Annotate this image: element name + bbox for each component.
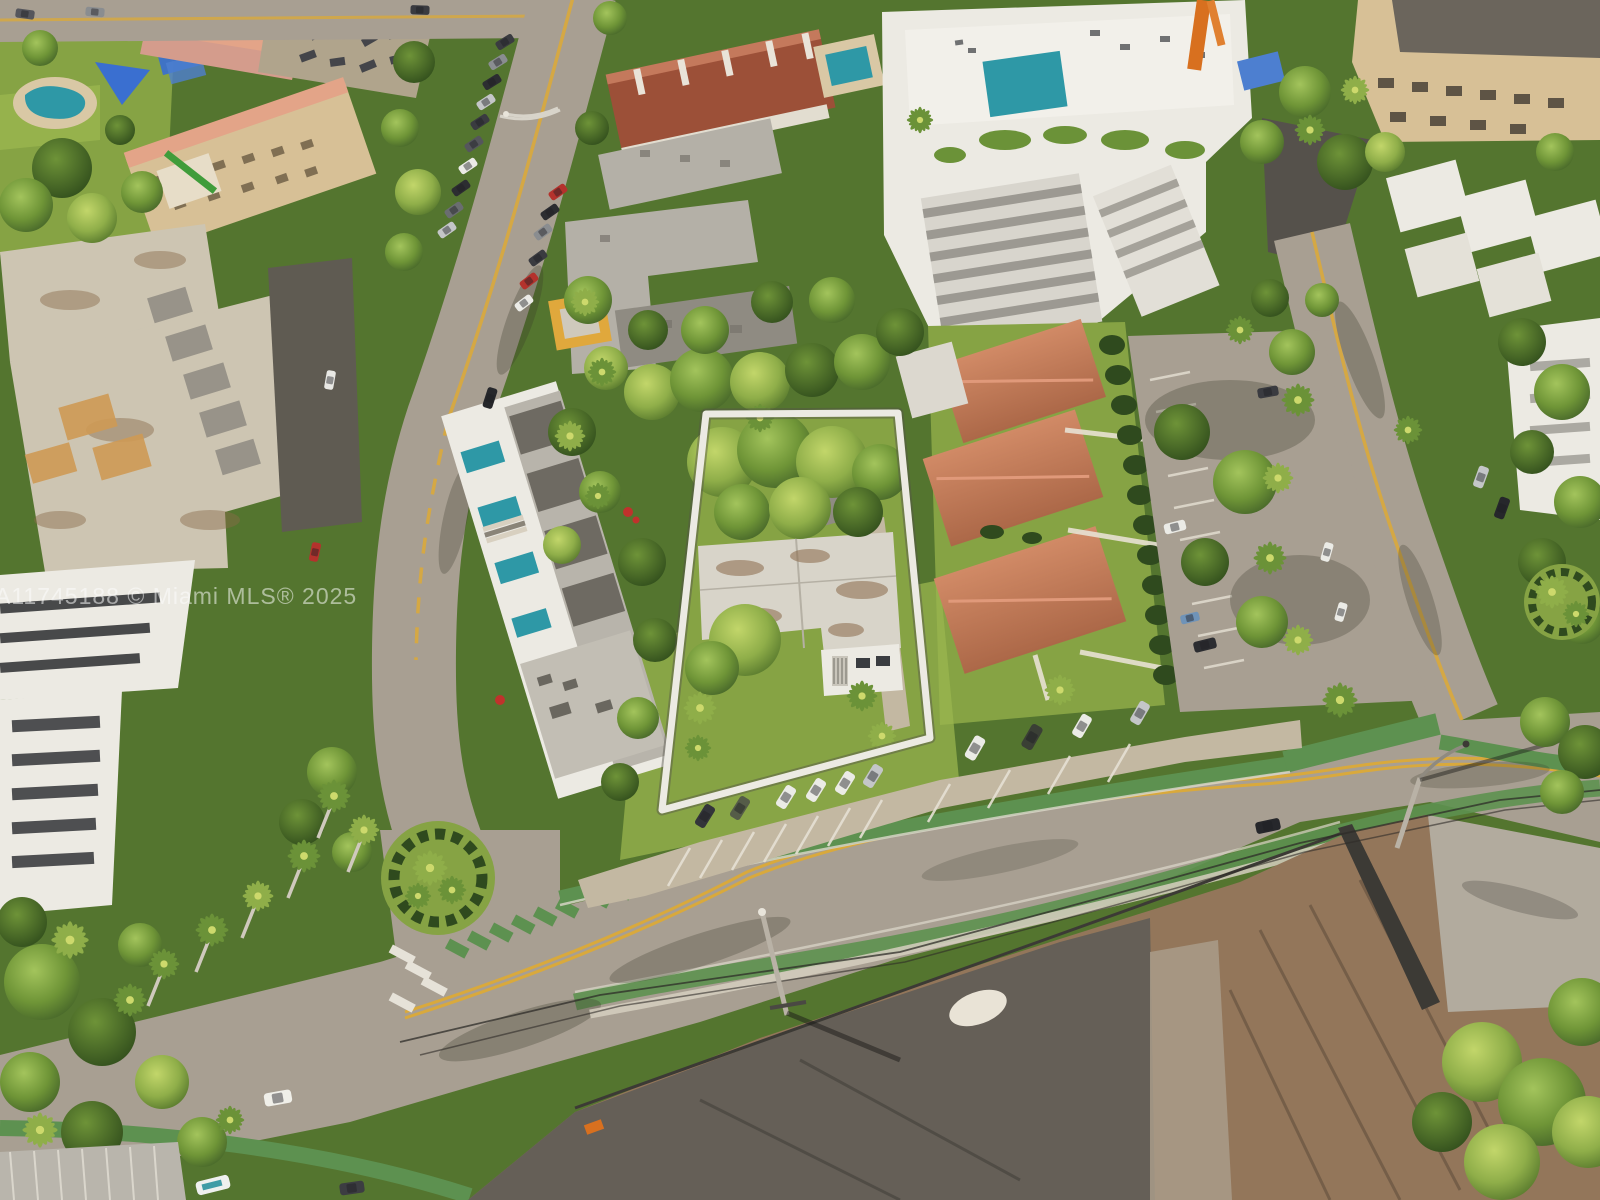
bottom-left-building — [0, 1142, 186, 1200]
balcony-face — [921, 173, 1102, 346]
mls-watermark: A11745188 © Miami MLS® 2025 — [0, 583, 357, 609]
red-umbrella — [623, 507, 633, 517]
courtyard-pavement — [268, 258, 362, 532]
tan-condo-top-right — [1352, 0, 1600, 142]
rooftop-pool — [982, 51, 1067, 117]
top-road — [0, 0, 560, 42]
aerial-photo-canvas: A11745188 © Miami MLS® 2025 — [0, 0, 1600, 1200]
white-condo-lower-left — [0, 690, 122, 915]
aerial-photo: A11745188 © Miami MLS® 2025 — [0, 0, 1600, 1200]
